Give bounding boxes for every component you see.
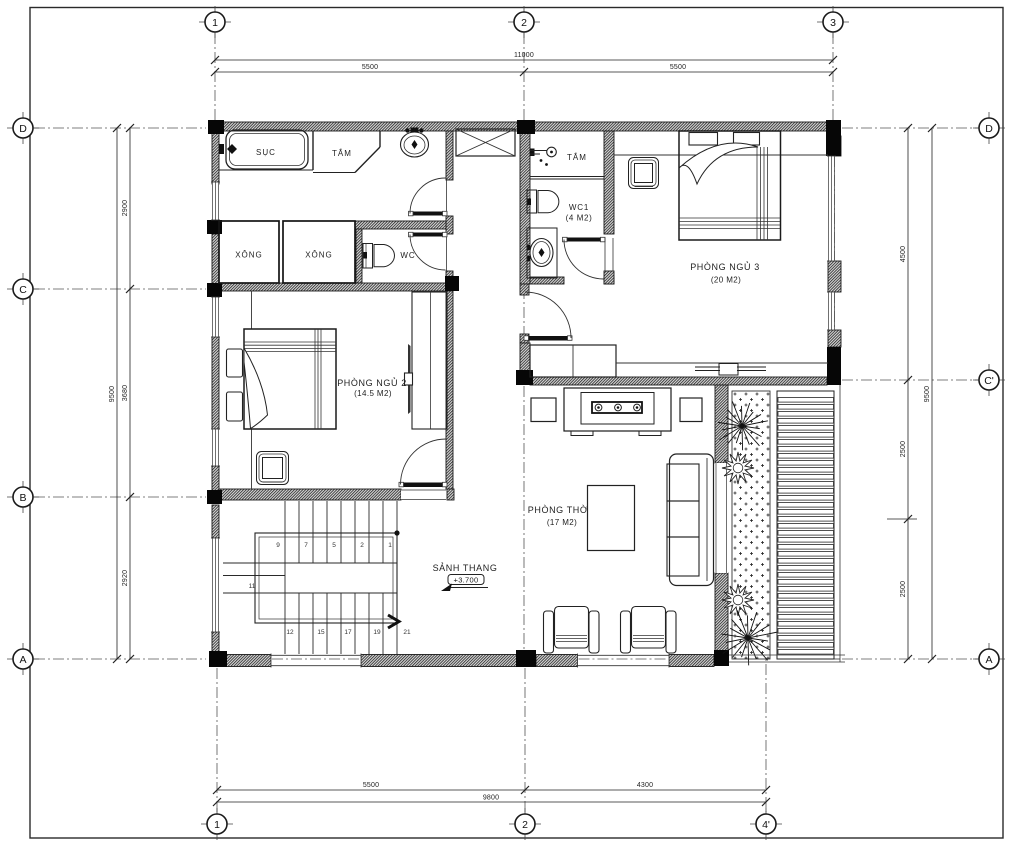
svg-text:2900: 2900 — [122, 200, 129, 216]
svg-text:5: 5 — [332, 542, 336, 549]
svg-text:2500: 2500 — [900, 441, 907, 457]
svg-text:WC: WC — [400, 251, 415, 260]
svg-text:SẢNH THANG: SẢNH THANG — [433, 562, 498, 573]
svg-text:12: 12 — [286, 629, 294, 636]
svg-text:C: C — [19, 284, 27, 296]
svg-text:21: 21 — [403, 629, 411, 636]
svg-text:2500: 2500 — [900, 581, 907, 597]
svg-text:15: 15 — [317, 629, 325, 636]
svg-text:1: 1 — [388, 542, 392, 549]
svg-text:+3.700: +3.700 — [454, 576, 479, 585]
svg-text:5500: 5500 — [362, 64, 378, 71]
svg-text:2: 2 — [522, 819, 528, 831]
svg-text:SỤC: SỤC — [256, 148, 276, 157]
svg-text:5500: 5500 — [363, 782, 379, 789]
svg-text:3680: 3680 — [122, 385, 129, 401]
svg-text:17: 17 — [344, 629, 352, 636]
svg-text:19: 19 — [373, 629, 381, 636]
svg-text:3: 3 — [830, 17, 836, 29]
svg-text:1: 1 — [212, 17, 218, 29]
svg-text:2: 2 — [360, 542, 364, 549]
svg-text:1: 1 — [214, 819, 220, 831]
svg-text:PHÒNG NGỦ 3: PHÒNG NGỦ 3 — [690, 261, 760, 272]
svg-text:A: A — [985, 654, 992, 666]
svg-text:D: D — [19, 123, 27, 135]
svg-text:XÔNG: XÔNG — [305, 251, 333, 260]
svg-text:2: 2 — [521, 17, 527, 29]
svg-text:TẮM: TẮM — [332, 149, 352, 158]
svg-text:11: 11 — [249, 583, 256, 590]
svg-text:TẮM: TẮM — [567, 153, 587, 162]
svg-text:4500: 4500 — [900, 246, 907, 262]
svg-text:XÔNG: XÔNG — [235, 251, 263, 260]
svg-text:9: 9 — [276, 542, 280, 549]
svg-text:2920: 2920 — [122, 570, 129, 586]
svg-text:B: B — [19, 492, 26, 504]
svg-text:11000: 11000 — [514, 52, 534, 59]
svg-text:9500: 9500 — [109, 386, 116, 402]
svg-text:PHÒNG NGỦ 2: PHÒNG NGỦ 2 — [337, 377, 407, 388]
svg-text:(20 M2): (20 M2) — [711, 276, 741, 285]
svg-text:WC1: WC1 — [569, 203, 589, 212]
svg-text:D: D — [985, 123, 993, 135]
svg-text:5500: 5500 — [670, 64, 686, 71]
svg-text:9500: 9500 — [924, 386, 931, 402]
svg-text:4300: 4300 — [637, 782, 653, 789]
svg-text:9800: 9800 — [483, 795, 499, 802]
svg-text:C': C' — [984, 375, 994, 387]
svg-text:(17 M2): (17 M2) — [547, 518, 577, 527]
svg-text:(4 M2): (4 M2) — [566, 214, 593, 223]
svg-text:(14.5 M2): (14.5 M2) — [354, 389, 392, 398]
svg-text:A: A — [19, 654, 26, 666]
svg-text:PHÒNG THỜ: PHÒNG THỜ — [528, 505, 588, 515]
svg-text:4': 4' — [762, 819, 770, 831]
svg-text:7: 7 — [304, 542, 308, 549]
